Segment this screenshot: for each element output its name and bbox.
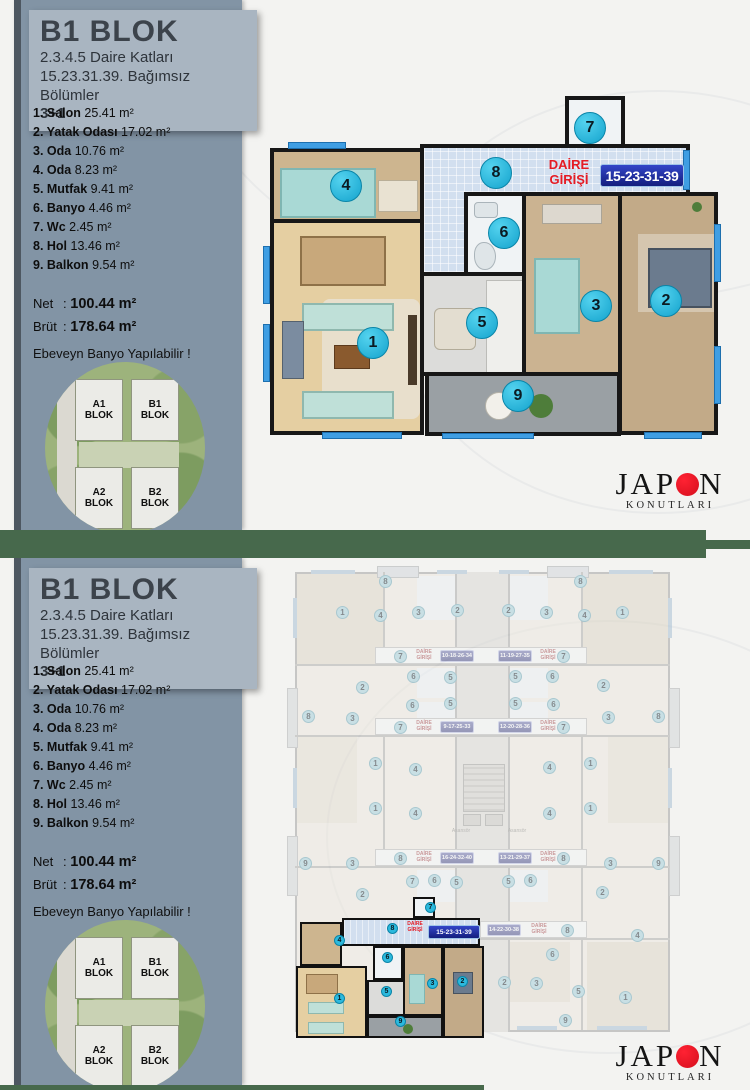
- room-number-circle: 4: [578, 609, 591, 622]
- bed: [534, 258, 580, 334]
- room-list-item: 1. Salon 25.41 m²: [33, 662, 170, 681]
- room-number-circle: 3: [540, 606, 553, 619]
- room-list-item: 2. Yatak Odası 17.02 m²: [33, 681, 170, 700]
- balcony-rail: [442, 433, 534, 439]
- room-number-5: 5: [466, 307, 498, 339]
- room-number-circle: 8: [561, 924, 574, 937]
- brut-row: Brüt: 178.64 m²: [33, 874, 136, 897]
- window: [293, 598, 297, 638]
- room-number-circle: 5: [444, 671, 457, 684]
- desk: [542, 204, 602, 224]
- room-number-circle: 2: [502, 604, 515, 617]
- panel-unit-plan: B1 BLOK 2.3.4.5 Daire Katları 15.23.31.3…: [0, 0, 750, 530]
- unit-number-badge: 16-24-32-40: [440, 852, 474, 864]
- green-divider: [0, 530, 706, 558]
- logo-red-dot-icon: [676, 1045, 699, 1068]
- unit-floor-plan: DAİREGİRİŞİ 15-23-31-39 1 2 3 4 5 6 7 8 …: [262, 96, 722, 440]
- room-number-3: 3: [427, 978, 438, 989]
- unit-floor-patch: [297, 737, 357, 823]
- header-units: 15.23.31.39. Bağımsız Bölümler: [40, 68, 251, 106]
- room-number-circle: 9: [299, 857, 312, 870]
- site-plan-thumbnail: A1 BLOK B1 BLOK A2 BLOK B2 BLOK: [45, 920, 205, 1085]
- unit-number-badge: 10-18-26-34: [440, 650, 474, 662]
- wall: [581, 737, 583, 866]
- panel-floor-overview: B1 BLOK 2.3.4.5 Daire Katları 15.23.31.3…: [0, 558, 750, 1085]
- page-title: B1 BLOK: [40, 573, 251, 607]
- room-number-circle: 6: [524, 874, 537, 887]
- room-number-4: 4: [330, 170, 362, 202]
- room-number-circle: 3: [346, 857, 359, 870]
- room-number-circle: 5: [509, 670, 522, 683]
- room-number-circle: 7: [557, 650, 570, 663]
- room-list-item: 5. Mutfak 9.41 m²: [33, 738, 170, 757]
- entry-label: DAİREGİRİŞİ: [410, 721, 438, 733]
- window: [668, 768, 672, 808]
- room-number-8: 8: [480, 157, 512, 189]
- room-number-circle: 3: [530, 977, 543, 990]
- room-number-circle: 4: [543, 761, 556, 774]
- room-number-circle: 1: [336, 606, 349, 619]
- window: [499, 570, 529, 574]
- room-number-circle: 9: [559, 1014, 572, 1027]
- entry-label: DAİREGİRİŞİ: [540, 158, 598, 188]
- room-list-item: 7. Wc 2.45 m²: [33, 218, 170, 237]
- room-number-circle: 6: [407, 670, 420, 683]
- unit-number-badge: 11-19-27-35: [498, 650, 532, 662]
- entrance-bar: 14-22-30-38DAİREGİRİŞİ8: [480, 921, 587, 938]
- room-number-5: 5: [381, 986, 392, 997]
- window: [288, 142, 346, 149]
- unit-floor-patch: [297, 574, 383, 664]
- plant: [692, 202, 702, 212]
- room-number-circle: 4: [631, 929, 644, 942]
- tv-unit: [408, 315, 417, 385]
- room-list-item: 9. Balkon 9.54 m²: [33, 256, 170, 275]
- room-oda-3: [522, 192, 622, 376]
- entry-label: DAİREGİRİŞİ: [525, 924, 553, 936]
- brand-logo: JAPN KONUTLARI: [600, 1038, 740, 1083]
- room-number-circle: 8: [574, 575, 587, 588]
- room-list-item: 3. Oda 10.76 m²: [33, 700, 170, 719]
- header-floors: 2.3.4.5 Daire Katları: [40, 607, 251, 626]
- room-number-circle: 7: [394, 650, 407, 663]
- room-number-circle: 8: [557, 852, 570, 865]
- desk: [378, 180, 418, 212]
- room-number-3: 3: [580, 290, 612, 322]
- room-number-2: 2: [457, 976, 468, 987]
- room-number-circle: 5: [450, 876, 463, 889]
- room-number-circle: 1: [616, 606, 629, 619]
- elevator-label: Asansör: [439, 828, 483, 834]
- site-block-a1: A1 BLOK: [75, 937, 123, 999]
- unit-floor-patch: [582, 574, 668, 664]
- room-number-circle: 8: [379, 575, 392, 588]
- totals: Net: 100.44 m² Brüt: 178.64 m²: [33, 293, 136, 339]
- site-courtyard: [79, 1000, 179, 1026]
- window: [644, 432, 702, 439]
- unit-number-badge: 9-17-25-33: [440, 721, 474, 733]
- room-list-item: 1. Salon 25.41 m²: [33, 104, 170, 123]
- page-title: B1 BLOK: [40, 15, 251, 49]
- building-floor-plan: Asansör Asansör: [287, 568, 687, 1040]
- logo-text: JAPN: [600, 466, 740, 502]
- sofa: [308, 1022, 344, 1034]
- room-number-circle: 2: [597, 679, 610, 692]
- window: [609, 570, 653, 574]
- room-number-circle: 7: [557, 721, 570, 734]
- plant: [403, 1024, 413, 1034]
- sofa: [302, 303, 394, 331]
- room-number-7: 7: [574, 112, 606, 144]
- room-list-item: 3. Oda 10.76 m²: [33, 142, 170, 161]
- room-salon: [296, 966, 367, 1038]
- room-number-1: 1: [357, 327, 389, 359]
- net-row: Net: 100.44 m²: [33, 851, 136, 874]
- room-number-7: 7: [425, 902, 436, 913]
- side-terrace: [669, 688, 680, 748]
- dining-table: [300, 236, 386, 286]
- room-list: 1. Salon 25.41 m²2. Yatak Odası 17.02 m²…: [33, 662, 170, 833]
- header-floors: 2.3.4.5 Daire Katları: [40, 49, 251, 68]
- window: [263, 324, 270, 382]
- window: [597, 1026, 647, 1030]
- window: [668, 598, 672, 638]
- room-list-item: 5. Mutfak 9.41 m²: [33, 180, 170, 199]
- window: [311, 570, 355, 574]
- window: [437, 570, 467, 574]
- room-list-item: 6. Banyo 4.46 m²: [33, 757, 170, 776]
- side-terrace: [287, 688, 298, 748]
- elevator-label: Asansör: [495, 828, 539, 834]
- room-list-item: 9. Balkon 9.54 m²: [33, 814, 170, 833]
- room-number-circle: 6: [546, 670, 559, 683]
- room-list-item: 8. Hol 13.46 m²: [33, 795, 170, 814]
- room-number-circle: 1: [619, 991, 632, 1004]
- room-number-2: 2: [650, 285, 682, 317]
- room-number-circle: 3: [412, 606, 425, 619]
- room-number-circle: 8: [394, 852, 407, 865]
- site-block-b2: B2 BLOK: [131, 1025, 179, 1085]
- room-list-item: 2. Yatak Odası 17.02 m²: [33, 123, 170, 142]
- bottom-green-strip: [0, 1085, 484, 1090]
- dining-table: [306, 974, 338, 994]
- wall: [295, 735, 670, 737]
- room-number-circle: 6: [547, 698, 560, 711]
- site-block-b1: B1 BLOK: [131, 937, 179, 999]
- room-yatak-odasi: [443, 946, 484, 1038]
- highlighted-unit: DAİREGİRİŞİ 15-23-31-39 4 8 7 6 5 3 2 1 …: [296, 918, 484, 1038]
- room-number-circle: 2: [356, 888, 369, 901]
- unit-floor-patch: [510, 942, 570, 1002]
- room-list-item: 4. Oda 8.23 m²: [33, 719, 170, 738]
- room-hall: [420, 192, 468, 276]
- stairs: [463, 764, 505, 812]
- site-plan-thumbnail: A1 BLOK B1 BLOK A2 BLOK B2 BLOK: [45, 362, 205, 530]
- room-number-9: 9: [395, 1016, 406, 1027]
- entrance-bar: 7DAİREGİRİŞİ10-18-26-3411-19-27-35DAİREG…: [375, 647, 587, 664]
- room-number-circle: 7: [406, 875, 419, 888]
- entry-label: DAİREGİRİŞİ: [410, 852, 438, 864]
- room-number-circle: 9: [652, 857, 665, 870]
- site-block-a1: A1 BLOK: [75, 379, 123, 441]
- unit-floor-patch: [587, 942, 668, 1030]
- room-number-circle: 6: [428, 874, 441, 887]
- room-number-circle: 5: [502, 875, 515, 888]
- room-number-circle: 6: [406, 699, 419, 712]
- window: [322, 432, 402, 439]
- entry-label: DAİREGİRİŞİ: [410, 650, 438, 662]
- unit-number-badge: 14-22-30-38: [487, 924, 521, 936]
- entrance-bar: 8DAİREGİRİŞİ16-24-32-4013-21-29-37DAİREG…: [375, 849, 587, 866]
- room-list: 1. Salon 25.41 m²2. Yatak Odası 17.02 m²…: [33, 104, 170, 275]
- brand-logo: JAPN KONUTLARI: [600, 466, 740, 511]
- entrance-bar: 7DAİREGİRİŞİ9-17-25-3312-20-28-36DAİREGİ…: [375, 718, 587, 735]
- bed: [409, 974, 425, 1004]
- note-text: Ebeveyn Banyo Yapılabilir !: [33, 904, 191, 919]
- room-number-circle: 4: [409, 807, 422, 820]
- bathtub: [474, 242, 496, 270]
- logo-red-dot-icon: [676, 473, 699, 496]
- wall: [295, 664, 670, 666]
- wall: [383, 737, 385, 866]
- room-list-item: 4. Oda 8.23 m²: [33, 161, 170, 180]
- room-list-item: 7. Wc 2.45 m²: [33, 776, 170, 795]
- site-road: [57, 920, 77, 1085]
- elevator: [463, 814, 481, 826]
- site-block-b2: B2 BLOK: [131, 467, 179, 529]
- room-number-circle: 1: [584, 802, 597, 815]
- wall: [581, 868, 583, 1030]
- room-number-6: 6: [488, 217, 520, 249]
- unit-number-badge: 15-23-31-39: [600, 164, 684, 187]
- room-number-6: 6: [382, 952, 393, 963]
- room-number-9: 9: [502, 380, 534, 412]
- site-block-b1: B1 BLOK: [131, 379, 179, 441]
- room-number-circle: 5: [444, 697, 457, 710]
- armchair: [282, 321, 304, 379]
- room-list-item: 6. Banyo 4.46 m²: [33, 199, 170, 218]
- room-number-circle: 6: [546, 948, 559, 961]
- unit-number-badge: 15-23-31-39: [428, 925, 480, 939]
- net-row: Net: 100.44 m²: [33, 293, 136, 316]
- room-number-circle: 7: [394, 721, 407, 734]
- room-number-circle: 2: [451, 604, 464, 617]
- side-terrace: [669, 836, 680, 896]
- page: B1 BLOK 2.3.4.5 Daire Katları 15.23.31.3…: [0, 0, 750, 1090]
- room-list-item: 8. Hol 13.46 m²: [33, 237, 170, 256]
- room-number-circle: 8: [302, 710, 315, 723]
- elevator: [485, 814, 503, 826]
- header-units: 15.23.31.39. Bağımsız Bölümler: [40, 626, 251, 664]
- brut-row: Brüt: 178.64 m²: [33, 316, 136, 339]
- room-number-circle: 2: [356, 681, 369, 694]
- room-number-circle: 2: [596, 886, 609, 899]
- room-number-circle: 3: [602, 711, 615, 724]
- room-number-circle: 5: [509, 697, 522, 710]
- window: [293, 768, 297, 808]
- green-divider-right: [706, 540, 750, 549]
- site-road: [57, 362, 77, 530]
- site-courtyard: [79, 442, 179, 468]
- room-number-4: 4: [334, 935, 345, 946]
- entry-label: DAİREGİRİŞİ: [401, 922, 429, 934]
- room-number-circle: 3: [604, 857, 617, 870]
- bed: [280, 168, 376, 218]
- room-salon: [270, 219, 424, 435]
- room-number-circle: 1: [369, 757, 382, 770]
- room-number-circle: 1: [369, 802, 382, 815]
- unit-floor-patch: [608, 737, 668, 823]
- sofa: [302, 391, 394, 419]
- unit-number-badge: 13-21-29-37: [498, 852, 532, 864]
- window: [714, 346, 721, 404]
- unit-number-badge: 12-20-28-36: [498, 721, 532, 733]
- room-number-8: 8: [387, 923, 398, 934]
- room-number-circle: 8: [652, 710, 665, 723]
- room-number-circle: 5: [572, 985, 585, 998]
- room-number-circle: 2: [498, 976, 511, 989]
- window: [263, 246, 270, 304]
- room-number-1: 1: [334, 993, 345, 1004]
- site-block-a2: A2 BLOK: [75, 1025, 123, 1085]
- totals: Net: 100.44 m² Brüt: 178.64 m²: [33, 851, 136, 897]
- window: [714, 224, 721, 282]
- window: [683, 150, 690, 190]
- window: [517, 1026, 557, 1030]
- room-number-circle: 1: [584, 757, 597, 770]
- room-number-circle: 4: [543, 807, 556, 820]
- room-number-circle: 3: [346, 712, 359, 725]
- logo-text: JAPN: [600, 1038, 740, 1074]
- note-text: Ebeveyn Banyo Yapılabilir !: [33, 346, 191, 361]
- room-number-circle: 4: [374, 609, 387, 622]
- site-block-a2: A2 BLOK: [75, 467, 123, 529]
- sink: [474, 202, 498, 218]
- room-number-circle: 4: [409, 763, 422, 776]
